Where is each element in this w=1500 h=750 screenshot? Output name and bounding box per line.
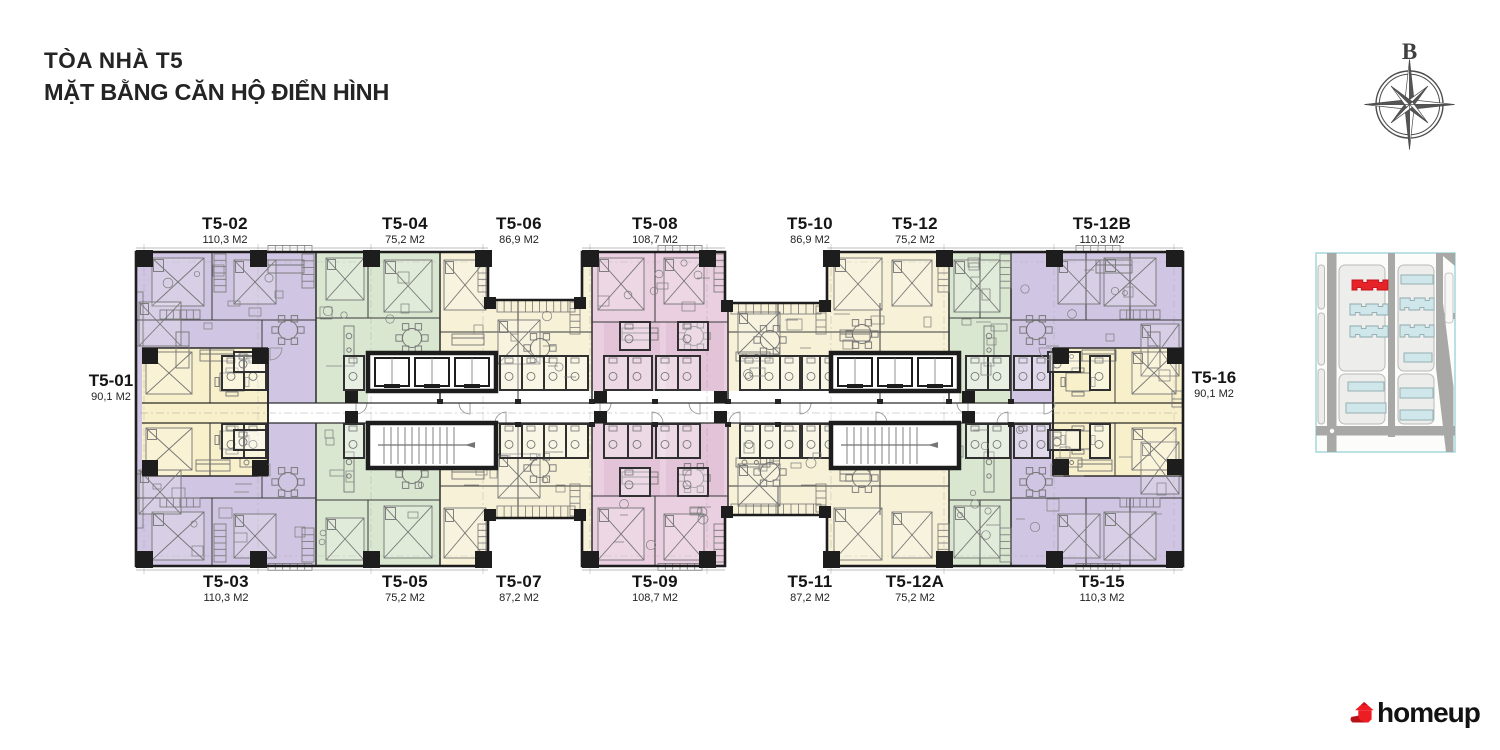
svg-text:75,2 M2: 75,2 M2: [895, 592, 935, 604]
svg-text:T5-08: T5-08: [632, 214, 678, 233]
svg-text:75,2 M2: 75,2 M2: [895, 234, 935, 246]
svg-text:T5-12: T5-12: [892, 214, 938, 233]
svg-text:108,7 M2: 108,7 M2: [632, 592, 678, 604]
svg-text:MẶT BẰNG CĂN HỘ ĐIỂN HÌNH: MẶT BẰNG CĂN HỘ ĐIỂN HÌNH: [44, 78, 389, 105]
svg-text:90,1 M2: 90,1 M2: [1194, 388, 1234, 400]
svg-text:T5-11: T5-11: [788, 572, 833, 591]
svg-text:110,3 M2: 110,3 M2: [202, 234, 247, 246]
svg-text:110,3 M2: 110,3 M2: [203, 592, 248, 604]
svg-text:90,1 M2: 90,1 M2: [91, 391, 131, 403]
svg-text:T5-04: T5-04: [382, 214, 428, 233]
svg-text:86,9 M2: 86,9 M2: [790, 234, 830, 246]
svg-text:T5-01: T5-01: [89, 371, 133, 390]
svg-text:108,7 M2: 108,7 M2: [632, 234, 678, 246]
svg-text:T5-16: T5-16: [1192, 368, 1236, 387]
svg-text:75,2 M2: 75,2 M2: [385, 234, 425, 246]
svg-text:T5-10: T5-10: [787, 214, 833, 233]
svg-text:86,9 M2: 86,9 M2: [499, 234, 539, 246]
svg-text:75,2 M2: 75,2 M2: [385, 592, 425, 604]
svg-text:110,3 M2: 110,3 M2: [1079, 234, 1124, 246]
svg-text:110,3 M2: 110,3 M2: [1079, 592, 1124, 604]
svg-text:T5-07: T5-07: [496, 572, 542, 591]
svg-text:homeup: homeup: [1377, 697, 1480, 728]
svg-text:T5-02: T5-02: [202, 214, 248, 233]
svg-text:T5-12A: T5-12A: [886, 572, 945, 591]
svg-text:T5-15: T5-15: [1079, 572, 1125, 591]
svg-text:87,2 M2: 87,2 M2: [499, 592, 539, 604]
svg-text:87,2 M2: 87,2 M2: [790, 592, 830, 604]
svg-text:TÒA NHÀ T5: TÒA NHÀ T5: [44, 48, 183, 73]
svg-text:T5-09: T5-09: [632, 572, 678, 591]
svg-text:T5-03: T5-03: [203, 572, 249, 591]
svg-text:B: B: [1402, 39, 1417, 64]
svg-text:T5-06: T5-06: [496, 214, 542, 233]
svg-text:T5-05: T5-05: [382, 572, 428, 591]
svg-text:T5-12B: T5-12B: [1073, 214, 1132, 233]
